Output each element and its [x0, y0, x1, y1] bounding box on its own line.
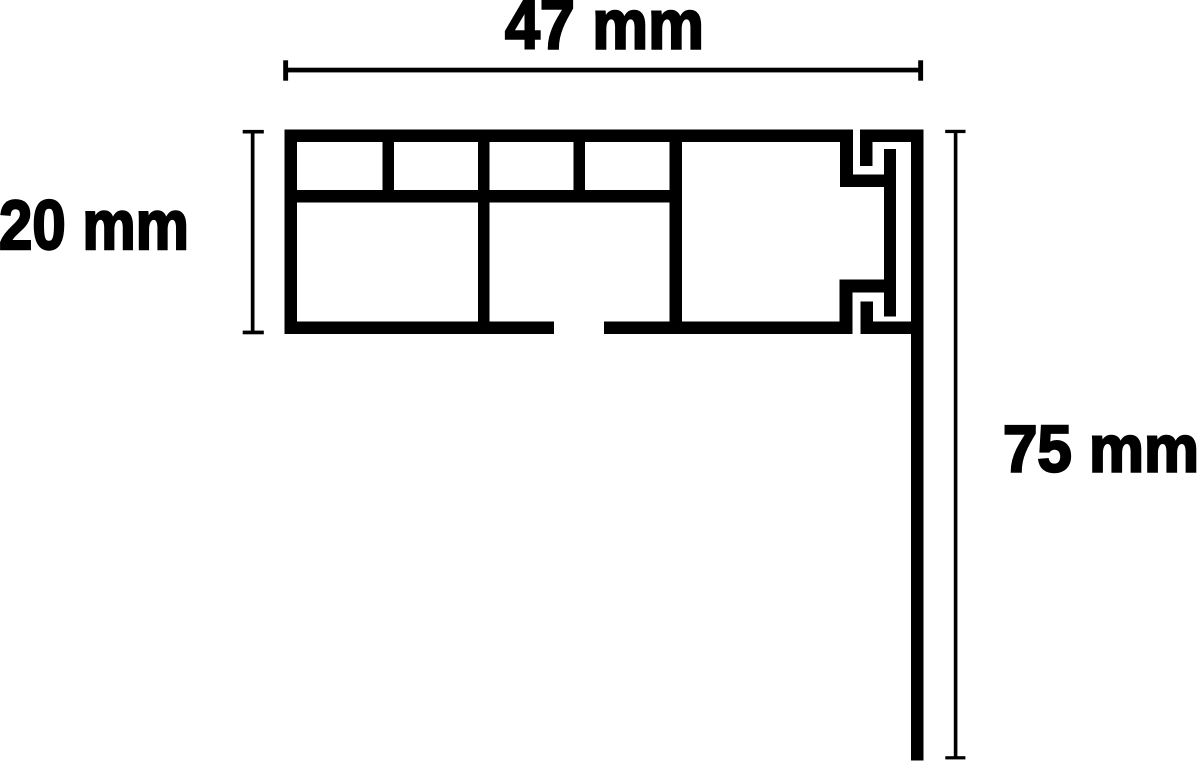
svg-text:75 mm: 75 mm	[1003, 411, 1199, 485]
svg-text:47 mm: 47 mm	[505, 0, 704, 63]
svg-text:20 mm: 20 mm	[0, 186, 189, 264]
